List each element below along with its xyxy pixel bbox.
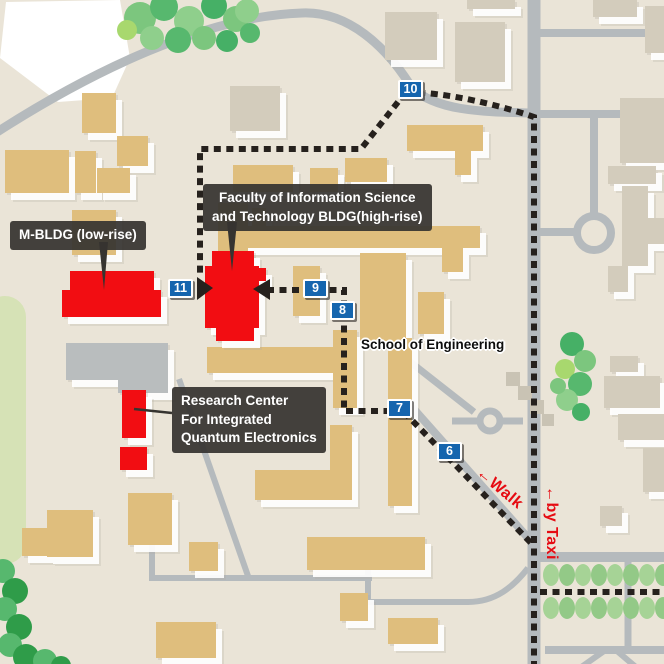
taxi-route-label: ←by Taxi bbox=[542, 486, 560, 560]
waypoint-badge-11[interactable]: 11 bbox=[168, 279, 193, 298]
building bbox=[255, 470, 352, 500]
building bbox=[388, 338, 412, 506]
building bbox=[75, 151, 96, 193]
building bbox=[307, 537, 425, 570]
callout-m-bldg-text: M-BLDG (low-rise) bbox=[19, 226, 137, 245]
waypoint-badge-10[interactable]: 10 bbox=[398, 80, 423, 99]
callout-research-line2: For Integrated bbox=[181, 411, 317, 430]
callout-faculty-line2: and Technology BLDG(high-rise) bbox=[212, 208, 423, 227]
waypoint-badge-6[interactable]: 6 bbox=[437, 442, 462, 461]
callout-faculty: Faculty of Information Science and Techn… bbox=[203, 184, 432, 231]
school-of-engineering-label: School of Engineering bbox=[361, 337, 504, 352]
campus-buildings-layer bbox=[0, 0, 664, 664]
callout-research-line1: Research Center bbox=[181, 392, 317, 411]
building bbox=[22, 528, 54, 556]
building bbox=[128, 493, 172, 545]
building bbox=[5, 150, 69, 193]
callout-research-line3: Quantum Electronics bbox=[181, 429, 317, 448]
building bbox=[82, 93, 116, 133]
building bbox=[360, 253, 406, 341]
waypoint-badge-7[interactable]: 7 bbox=[387, 399, 412, 418]
building bbox=[117, 136, 148, 166]
callout-faculty-line1: Faculty of Information Science bbox=[212, 189, 423, 208]
callout-research-center: Research Center For Integrated Quantum E… bbox=[172, 387, 326, 453]
building bbox=[442, 237, 463, 272]
building bbox=[333, 330, 357, 408]
building bbox=[97, 168, 130, 193]
building bbox=[156, 622, 216, 658]
building bbox=[455, 151, 471, 175]
building bbox=[407, 125, 483, 151]
waypoint-badge-8[interactable]: 8 bbox=[330, 301, 355, 320]
waypoint-badge-9[interactable]: 9 bbox=[303, 279, 328, 298]
building bbox=[189, 542, 218, 571]
building bbox=[345, 158, 387, 182]
campus-map-canvas[interactable]: M-BLDG (low-rise) Faculty of Information… bbox=[0, 0, 664, 664]
building bbox=[207, 347, 333, 373]
building bbox=[388, 618, 438, 644]
building bbox=[340, 593, 368, 621]
building bbox=[418, 292, 444, 334]
callout-m-bldg: M-BLDG (low-rise) bbox=[10, 221, 146, 250]
